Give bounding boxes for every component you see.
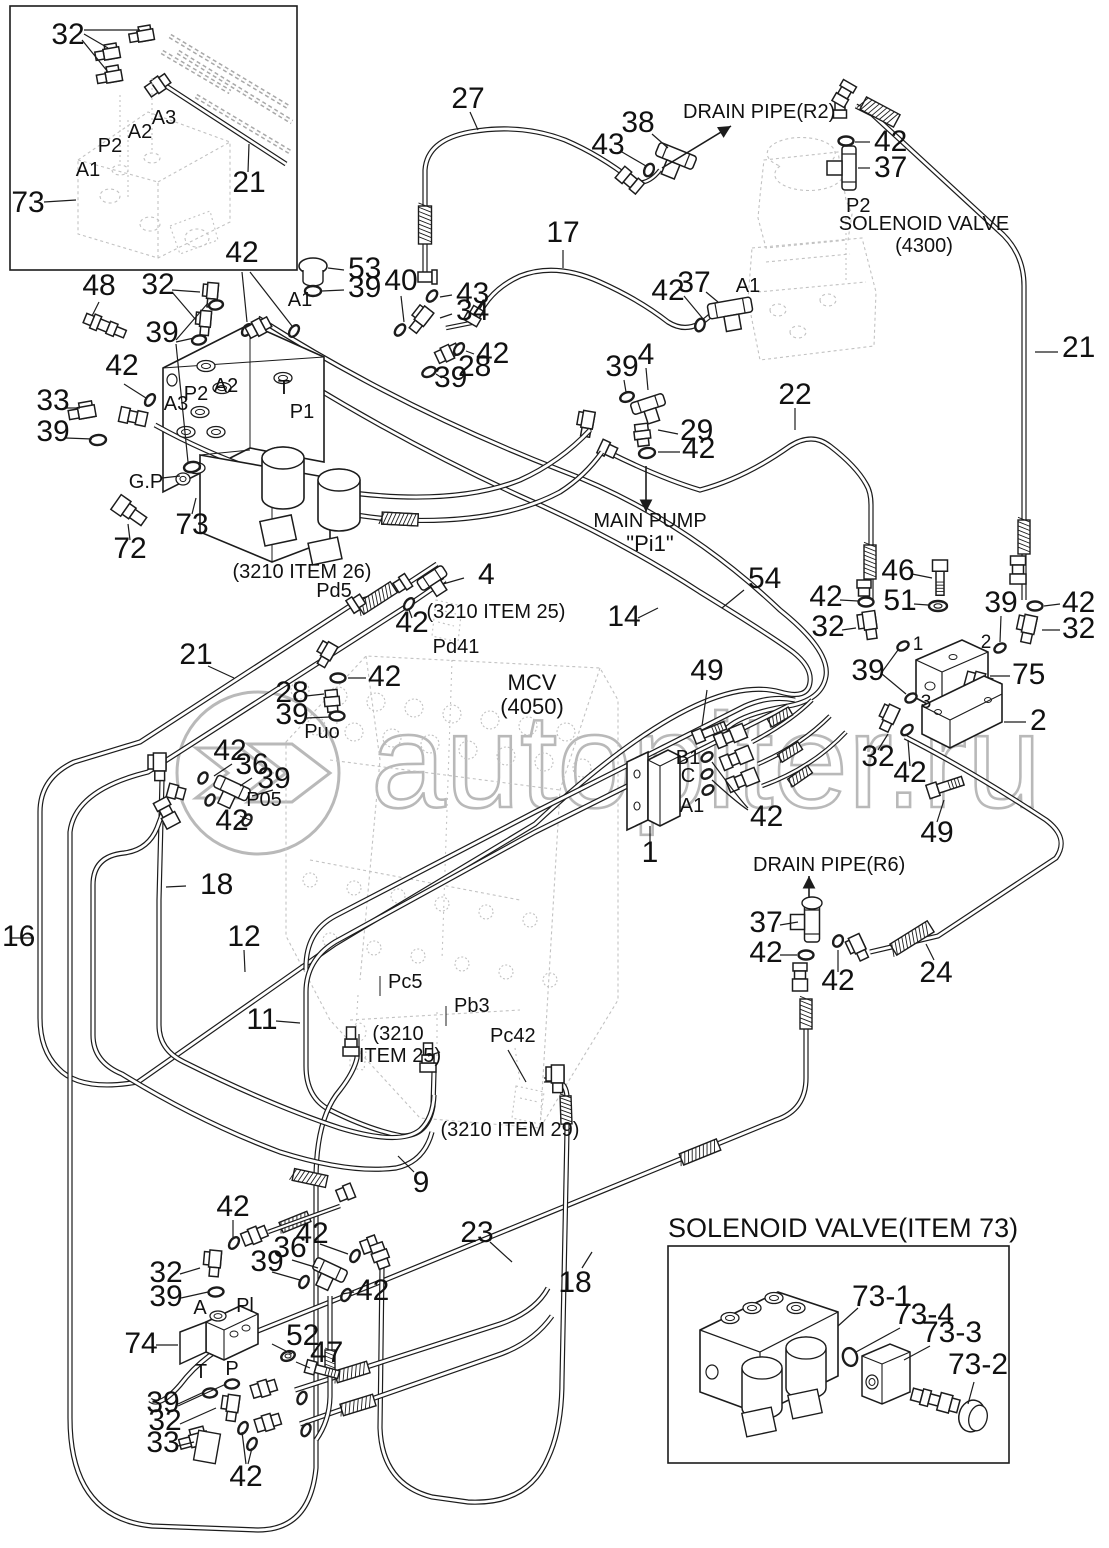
svg-text:SOLENOID VALVE: SOLENOID VALVE [839,213,1009,235]
svg-text:73-2: 73-2 [948,1348,1008,1381]
svg-text:24: 24 [919,956,952,989]
svg-text:38: 38 [621,106,654,139]
svg-text:75: 75 [1012,658,1045,691]
svg-text:39: 39 [851,654,884,687]
svg-text:72: 72 [113,532,146,565]
svg-text:Pd41: Pd41 [433,636,480,658]
svg-text:Pb3: Pb3 [454,995,490,1017]
svg-text:32: 32 [51,18,84,51]
svg-text:A1: A1 [288,289,312,311]
svg-text:A: A [193,1297,207,1319]
svg-text:17: 17 [546,216,579,249]
svg-text:42: 42 [225,236,258,269]
svg-text:MAIN PUMP: MAIN PUMP [593,510,706,532]
svg-text:"Pi1": "Pi1" [626,531,673,556]
svg-text:A1: A1 [736,275,760,297]
svg-text:33: 33 [146,1426,179,1459]
svg-text:42: 42 [682,432,715,465]
svg-text:P1: P1 [290,401,314,423]
svg-text:2: 2 [981,632,992,653]
svg-text:42: 42 [229,1460,262,1493]
svg-text:32: 32 [861,740,894,773]
svg-text:39: 39 [149,1280,182,1313]
svg-text:42: 42 [295,1217,328,1250]
svg-text:A3: A3 [164,393,188,415]
svg-text:37: 37 [749,906,782,939]
svg-text:34: 34 [456,294,489,327]
svg-text:MCV: MCV [508,670,557,695]
svg-text:Pd5: Pd5 [316,580,352,602]
svg-text:3: 3 [921,692,932,713]
svg-text:42: 42 [893,756,926,789]
svg-text:39: 39 [605,350,638,383]
svg-text:A1: A1 [680,795,704,817]
svg-text:18: 18 [558,1266,591,1299]
svg-text:Pc42: Pc42 [490,1025,536,1047]
svg-text:48: 48 [82,269,115,302]
svg-text:T: T [195,1361,207,1383]
svg-text:73-3: 73-3 [922,1316,982,1349]
svg-text:39: 39 [36,415,69,448]
svg-text:42: 42 [809,580,842,613]
svg-text:39: 39 [984,586,1017,619]
svg-text:A2: A2 [214,375,238,397]
svg-text:51: 51 [883,584,916,617]
svg-text:47: 47 [310,1336,343,1369]
svg-text:4: 4 [638,338,655,371]
svg-text:P: P [225,1358,238,1380]
svg-text:39: 39 [434,361,467,394]
svg-text:23: 23 [460,1216,493,1249]
svg-text:21: 21 [1062,331,1095,364]
svg-text:P05: P05 [246,789,282,811]
svg-text:37: 37 [677,266,710,299]
svg-text:73: 73 [11,186,44,219]
svg-text:A3: A3 [152,107,176,129]
svg-text:42: 42 [368,660,401,693]
svg-text:32: 32 [811,610,844,643]
svg-text:DRAIN PIPE(R6): DRAIN PIPE(R6) [753,854,905,876]
svg-text:39: 39 [250,1245,283,1278]
svg-text:42: 42 [821,964,854,997]
svg-text:18: 18 [200,868,233,901]
svg-text:27: 27 [451,82,484,115]
svg-text:14: 14 [607,600,640,633]
svg-text:32: 32 [1062,612,1095,645]
svg-text:21: 21 [179,638,212,671]
svg-text:P2: P2 [98,135,122,157]
svg-text:22: 22 [778,378,811,411]
svg-text:42: 42 [216,1190,249,1223]
svg-text:42: 42 [395,606,428,639]
svg-text:9: 9 [413,1166,430,1199]
svg-text:DRAIN PIPE(R2): DRAIN PIPE(R2) [683,101,835,123]
svg-text:16: 16 [2,920,35,953]
svg-text:43: 43 [591,128,624,161]
svg-text:A1: A1 [76,159,100,181]
svg-text:32: 32 [141,268,174,301]
svg-text:33: 33 [36,384,69,417]
svg-text:42: 42 [356,1274,389,1307]
svg-text:A2: A2 [128,121,152,143]
svg-text:T: T [278,377,290,399]
svg-text:(3210 ITEM 29): (3210 ITEM 29) [441,1119,580,1141]
svg-text:(4300): (4300) [895,235,953,257]
svg-text:4: 4 [478,558,495,591]
svg-text:49: 49 [690,654,723,687]
svg-text:SOLENOID VALVE(ITEM 73): SOLENOID VALVE(ITEM 73) [668,1213,1018,1243]
svg-text:G.P: G.P [129,471,163,493]
svg-text:Pl: Pl [236,1295,254,1317]
svg-text:2: 2 [1030,704,1047,737]
svg-text:40: 40 [384,264,417,297]
svg-text:54: 54 [748,562,781,595]
svg-text:46: 46 [881,554,914,587]
svg-text:42: 42 [750,800,783,833]
svg-text:Pc5: Pc5 [388,971,422,993]
svg-text:11: 11 [246,1003,277,1036]
svg-text:37: 37 [874,151,907,184]
svg-text:74: 74 [124,1327,157,1360]
svg-text:49: 49 [920,816,953,849]
svg-text:1: 1 [913,634,924,655]
svg-text:(4050): (4050) [500,694,564,719]
svg-text:42: 42 [105,349,138,382]
svg-text:73: 73 [175,508,208,541]
svg-text:1: 1 [642,836,659,869]
svg-text:12: 12 [227,920,260,953]
svg-text:42: 42 [215,804,248,837]
svg-text:21: 21 [232,166,265,199]
svg-text:42: 42 [749,936,782,969]
svg-text:Puo: Puo [304,721,340,743]
svg-text:39: 39 [145,316,178,349]
svg-text:C: C [681,765,695,787]
svg-text:(3210 ITEM 25): (3210 ITEM 25) [427,601,566,623]
svg-text:39: 39 [348,271,381,304]
svg-text:(3210: (3210 [372,1023,423,1045]
